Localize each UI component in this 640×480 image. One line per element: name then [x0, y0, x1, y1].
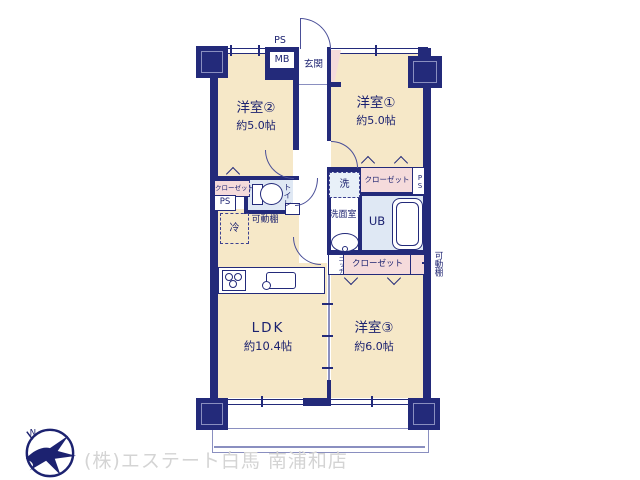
shelf-ldk-text: 可動棚	[251, 215, 278, 225]
window-bottom-ldk	[228, 399, 303, 405]
stove-burner	[229, 280, 237, 288]
closet-room1-label: クローゼット	[365, 175, 410, 184]
wall-right	[423, 48, 431, 406]
room1-name: 洋室①	[336, 95, 416, 111]
room2-size: 約5.0帖	[216, 119, 296, 132]
kitchen-faucet	[262, 281, 271, 290]
washroom-text: 洗面室	[329, 210, 356, 220]
washroom-label: 洗面室	[324, 210, 362, 221]
ps-right-box: PS	[412, 167, 425, 195]
bath-label: UB	[362, 215, 392, 229]
shelf-right-box	[410, 254, 425, 275]
entrance-door-arc	[300, 18, 331, 49]
company-logo-bird-icon: N	[20, 424, 78, 480]
window-tick	[375, 45, 377, 56]
sliding-door-tick	[322, 367, 333, 369]
pillar-inner-line	[413, 403, 435, 425]
pillar-inner-line	[201, 403, 223, 425]
ldk-name: LDK	[228, 320, 308, 336]
ps-top-label: PS	[266, 35, 294, 46]
sliding-door-tick	[322, 303, 333, 305]
room3-size: 約6.0帖	[334, 340, 414, 353]
toilet-label: トイレ	[280, 180, 292, 210]
pillar-inner-line	[201, 51, 223, 73]
stove	[222, 270, 246, 291]
closet-room3-label: クローゼット	[352, 259, 403, 269]
room3-name-text: 洋室③	[354, 320, 393, 336]
hallway-floor	[299, 48, 327, 263]
room2-name: 洋室②	[216, 100, 296, 116]
ps-left-box: PS	[214, 195, 236, 211]
ldk-size: 約10.4帖	[228, 340, 308, 354]
company-name: (株)エステート白馬 南浦和店	[84, 446, 348, 473]
entrance-step-line	[299, 84, 327, 85]
mb-label: MB	[275, 54, 290, 65]
wall-partition-foot	[327, 380, 331, 398]
room1-name-text: 洋室①	[356, 95, 395, 111]
partition-ldk-room3	[328, 273, 330, 380]
room2-name-text: 洋室②	[236, 100, 275, 116]
shelf-right-pointer	[422, 262, 429, 264]
fridge-label: 冷	[230, 223, 240, 234]
bath-text: UB	[369, 214, 385, 228]
shelf-right-text: 可動棚	[433, 251, 443, 277]
closet-room3-box: クローゼット	[343, 254, 412, 275]
bathtub	[392, 198, 423, 250]
sliding-door-tick	[322, 335, 333, 337]
pillar-bottom-left	[196, 398, 228, 430]
entrance-text: 玄関	[304, 59, 323, 70]
company-name-text: (株)エステート白馬 南浦和店	[84, 450, 348, 472]
washroom-sink-tap	[342, 246, 348, 252]
ps-top-text: PS	[274, 35, 286, 46]
pillar-top-left	[196, 46, 228, 78]
entrance-label: 玄関	[300, 59, 327, 70]
shelf-right-label: 可動棚	[429, 244, 443, 284]
toilet-text: トイレ	[283, 183, 292, 207]
room2-size-text: 約5.0帖	[236, 119, 276, 132]
window-tick	[261, 396, 263, 407]
closet-room1-box: クローゼット	[360, 167, 414, 193]
room3-size-text: 約6.0帖	[354, 340, 394, 353]
mb-box: MB	[269, 51, 295, 69]
washer-box: 洗	[329, 172, 360, 198]
shelf-ldk-label: 可動棚	[245, 215, 285, 226]
room3-name: 洋室③	[334, 320, 414, 336]
window-bottom-room3	[331, 399, 408, 405]
ldk-name-text: LDK	[252, 320, 285, 336]
wall-bottom-mid-stub	[303, 398, 331, 406]
window-tick	[371, 396, 373, 407]
floorplan-canvas: MB クローゼット PS 冷 洗 クローゼット PS ニッチ クローゼット PS…	[0, 0, 640, 480]
window-tick	[258, 45, 260, 56]
window-tick	[230, 45, 232, 56]
room1-size-text: 約5.0帖	[356, 114, 396, 127]
wall-hall-right-upper	[327, 47, 331, 141]
ps-right-label: PS	[416, 174, 424, 190]
pillar-bottom-right	[408, 398, 440, 430]
ps-left-label: PS	[220, 197, 231, 207]
bathtub-inner-line	[396, 202, 419, 246]
ldk-size-text: 約10.4帖	[244, 339, 293, 353]
wall-entrance-stub	[331, 82, 341, 87]
pillar-top-right	[408, 56, 442, 88]
pillar-inner-line	[413, 61, 437, 83]
closet-left-label: クローゼット	[215, 184, 254, 192]
washer-label: 洗	[340, 179, 350, 190]
room1-size: 約5.0帖	[336, 114, 416, 127]
